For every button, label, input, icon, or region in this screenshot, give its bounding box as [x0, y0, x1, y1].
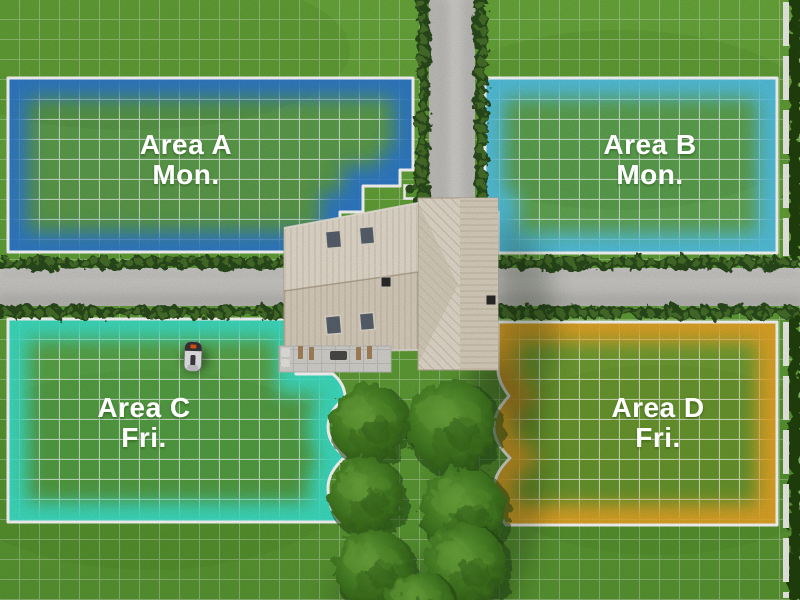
area-a-label: Area A: [140, 129, 232, 160]
area-d-label: Area D: [611, 392, 704, 423]
area-b-label: Area B: [603, 129, 696, 160]
garden-map: Area A Mon. Area B Mon. Area C Fri. Area…: [0, 0, 800, 600]
garden-map-canvas: Area A Mon. Area B Mon. Area C Fri. Area…: [0, 0, 800, 600]
area-d-day-label: Fri.: [635, 422, 681, 453]
area-c-label: Area C: [97, 392, 190, 423]
area-c-day-label: Fri.: [121, 422, 167, 453]
grain-overlay: [0, 0, 800, 600]
area-b-day-label: Mon.: [616, 159, 683, 190]
area-a-day-label: Mon.: [152, 159, 219, 190]
